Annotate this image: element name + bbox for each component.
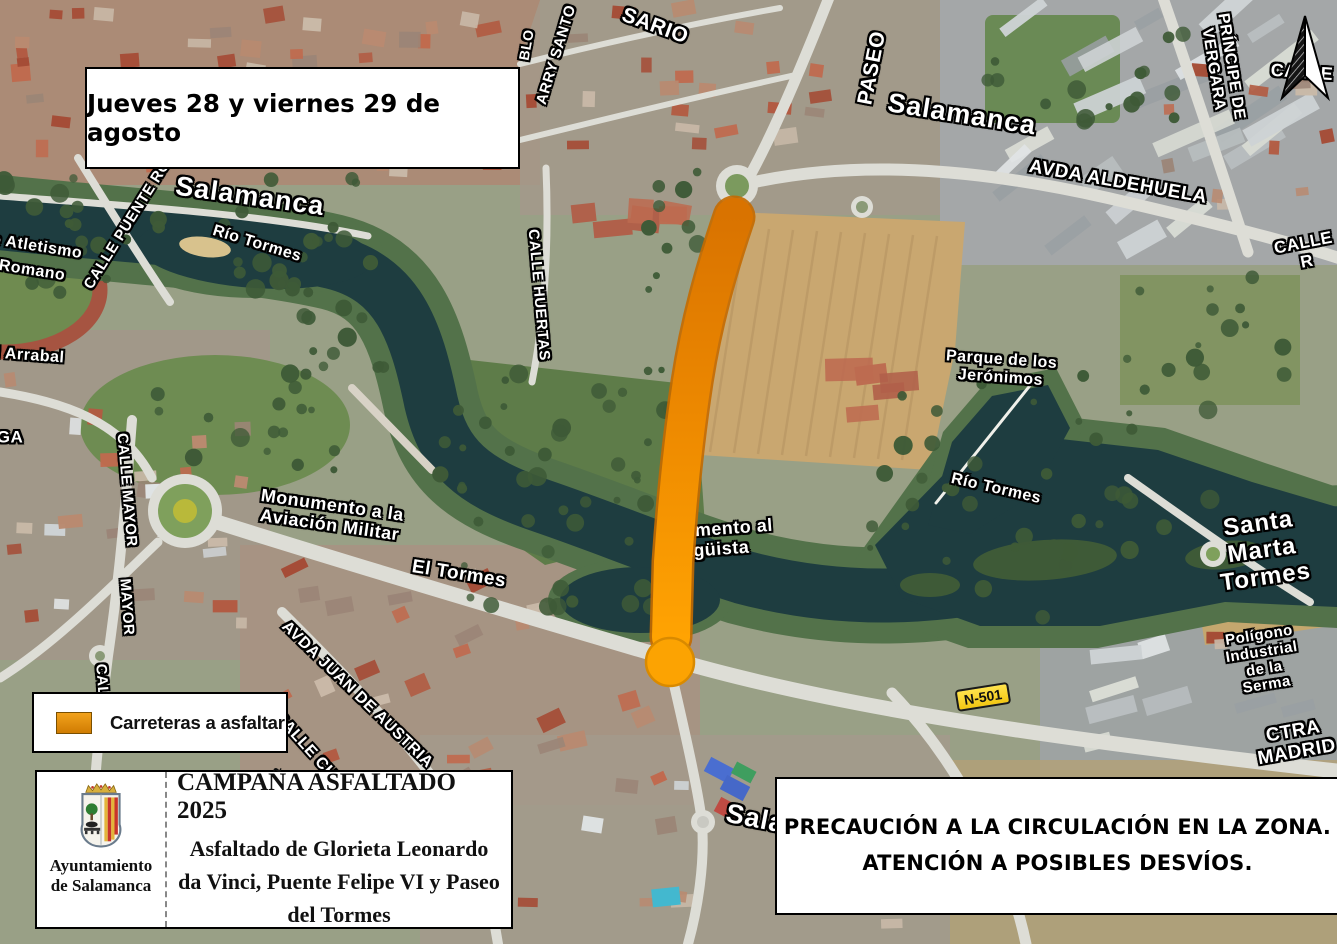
warning-box: PRECAUCIÓN A LA CIRCULACIÓN EN LA ZONA. … (775, 777, 1337, 915)
org-name: Ayuntamiento de Salamanca (50, 856, 153, 897)
label-calle-puente-romano: CALLE PUENTE RO (81, 157, 174, 292)
label-monumento-frag2: agüista (682, 537, 750, 562)
label-monumento-aviacion: Monumento a la Aviación Militar (257, 485, 405, 545)
legend-label: Carreteras a asfaltar (110, 712, 285, 734)
label-paseo: PASEO (853, 29, 890, 107)
label-calle-mayor: CALLE MAYOR (113, 432, 140, 547)
label-avda-aldehuela: AVDA ALDEHUELA (1027, 156, 1208, 208)
label-rio-tormes-east: Río Tormes (949, 470, 1043, 508)
campaign-box: Ayuntamiento de Salamanca CAMPAÑA ASFALT… (35, 770, 513, 929)
campaign-subtitle: Asfaltado de Glorieta Leonardo da Vinci,… (177, 832, 501, 931)
campaign-org-panel: Ayuntamiento de Salamanca (37, 772, 167, 927)
label-atletismo-line2: Romano (0, 257, 66, 285)
campaign-title: CAMPAÑA ASFALTADO 2025 (177, 769, 501, 825)
road-shield-n501: N-501 (955, 682, 1012, 712)
label-salamanca-north: Salamanca (886, 87, 1039, 140)
label-poligono-serma: Polígono Industrial de la Serma (1221, 622, 1305, 700)
salamanca-coat-of-arms (74, 780, 128, 852)
legend-swatch-orange (56, 712, 92, 734)
label-mayor: MAYOR (116, 578, 137, 636)
label-salamanca-west: Salamanca (174, 171, 327, 222)
label-ga: GA (0, 427, 23, 446)
campaign-text-panel: CAMPAÑA ASFALTADO 2025 Asfaltado de Glor… (167, 772, 511, 927)
label-calle-r: CALLE R (1272, 228, 1337, 277)
label-sario: SARIO (619, 3, 692, 49)
legend-box: Carreteras a asfaltar (32, 692, 288, 753)
label-rio-tormes-west: Río Tormes (210, 222, 303, 266)
label-arry-santo: ARRY SANTO (534, 3, 580, 106)
warning-text: PRECAUCIÓN A LA CIRCULACIÓN EN LA ZONA. … (784, 810, 1331, 881)
label-parque-jeronimos: Parque de los Jerónimos (944, 347, 1058, 390)
label-el-tormes: El Tormes (410, 556, 507, 592)
label-ctra-madrid: CTRA MADRID (1252, 714, 1337, 770)
label-arrabal: l Arrabal (0, 345, 65, 368)
label-calle-principe-vergara: PRÍNCIPE DE VERGARA (1195, 8, 1248, 127)
date-text: Jueves 28 y viernes 29 de agosto (87, 89, 518, 147)
label-calle-top-right: CALLE (1270, 60, 1334, 84)
label-santa-marta-tormes: Santa Marta Tormes (1211, 505, 1312, 597)
label-calle-huertas: CALLE HUERTAS (524, 228, 552, 361)
date-box: Jueves 28 y viernes 29 de agosto (85, 67, 520, 169)
map-canvas: ARRY SANTOSARIOPASEOBLOSalamancaAVDA ALD… (0, 0, 1337, 944)
label-blo: BLO (517, 28, 538, 61)
